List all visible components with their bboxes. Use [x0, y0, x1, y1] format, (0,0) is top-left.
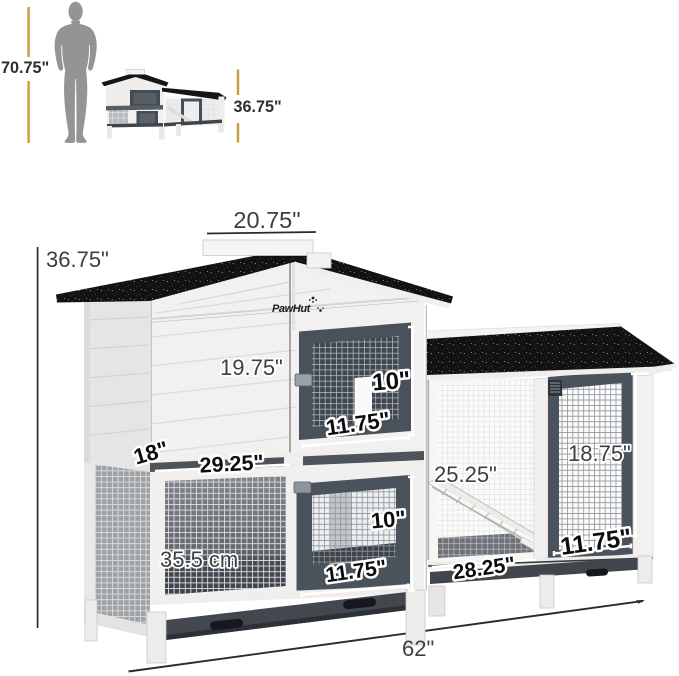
svg-text:70.75": 70.75" — [1, 59, 49, 77]
svg-text:29.25": 29.25" — [199, 450, 264, 477]
svg-text:25.25": 25.25" — [434, 462, 497, 487]
svg-text:10": 10" — [371, 366, 411, 396]
svg-text:PawHut: PawHut — [272, 303, 312, 315]
svg-text:35.5 cm: 35.5 cm — [160, 547, 238, 572]
svg-text:20.75": 20.75" — [233, 207, 300, 233]
svg-text:62": 62" — [402, 636, 434, 661]
svg-text:19.75": 19.75" — [220, 355, 283, 380]
svg-text:10": 10" — [370, 506, 407, 534]
svg-text:36.75": 36.75" — [234, 98, 282, 116]
svg-text:36.75": 36.75" — [46, 247, 109, 272]
svg-text:18.75": 18.75" — [568, 441, 631, 466]
